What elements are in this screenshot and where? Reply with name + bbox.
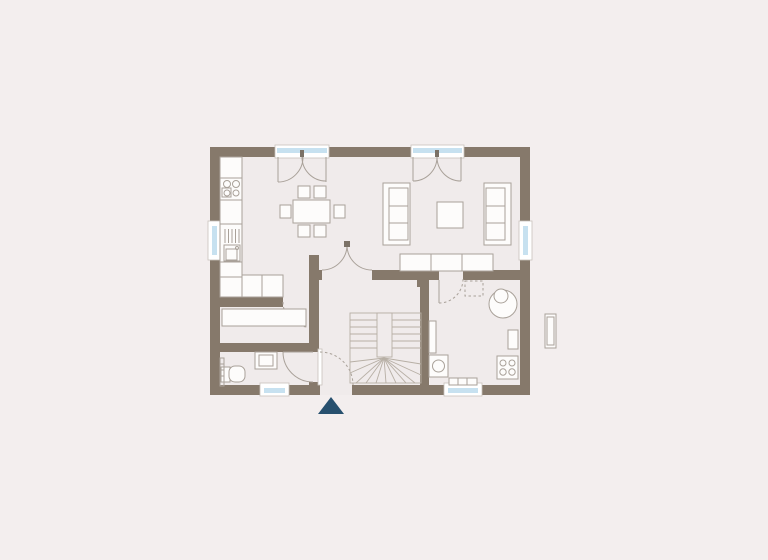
outer-wall-left-lower	[210, 258, 220, 385]
coffee-table	[437, 202, 463, 228]
door-mullion	[435, 150, 439, 157]
window-right	[519, 221, 532, 260]
lowboard-body	[400, 254, 493, 271]
outer-wall-bottom-right	[480, 385, 530, 395]
lowboard	[400, 254, 493, 271]
utility-shelf	[508, 330, 518, 349]
door-leaf	[318, 349, 322, 385]
outer-wall-right-upper	[520, 157, 530, 223]
dining-chair	[298, 225, 310, 237]
sofa-left	[383, 183, 410, 245]
window-left	[208, 221, 221, 260]
outer-wall-top-center	[327, 147, 413, 157]
utility-radiator	[449, 378, 477, 385]
toilet-bowl	[229, 366, 245, 382]
window-glass	[448, 388, 478, 393]
window-glass	[264, 388, 285, 393]
toilet	[221, 366, 245, 382]
dining-chair	[314, 186, 326, 198]
window-glass	[523, 226, 528, 255]
heater-top	[494, 289, 508, 303]
door-pivot	[344, 241, 350, 247]
utility-cabinet	[429, 321, 436, 353]
wall-pantry-south	[210, 343, 319, 352]
wall-kitchen-south	[210, 297, 283, 307]
outer-wall-top-left	[210, 147, 277, 157]
door-mullion	[300, 150, 304, 157]
utility-appliance-icon	[497, 356, 518, 379]
wall-hall-west-stub	[309, 382, 319, 385]
outer-wall-top-right	[462, 147, 530, 157]
dining-chair	[298, 186, 310, 198]
wall-mid-west	[309, 270, 322, 280]
door-threshold	[320, 385, 352, 395]
outer-wall-right-lower	[520, 258, 530, 385]
wall-hall-west	[309, 255, 319, 352]
dining-chair	[334, 205, 345, 218]
outer-wall-bottom-entry-left	[288, 385, 320, 395]
washer-body	[429, 355, 448, 377]
window-wc	[260, 383, 289, 396]
wc-sink	[255, 352, 277, 369]
radiator-body	[449, 378, 477, 385]
floor-plan	[0, 0, 768, 560]
exterior-object	[545, 314, 556, 348]
dining-chair	[280, 205, 291, 218]
stair-void	[377, 313, 392, 357]
appliance-body	[497, 356, 518, 379]
pantry-shelf	[222, 309, 306, 326]
sofa-body	[383, 183, 410, 245]
window-glass	[212, 226, 217, 255]
dining-chair	[314, 225, 326, 237]
outer-wall-left-upper	[210, 157, 220, 223]
dining-table	[293, 200, 330, 223]
outer-wall-bottom-center	[352, 385, 446, 395]
outer-wall-bottom-left	[210, 385, 262, 395]
sofa-right	[484, 183, 511, 245]
sofa-body	[484, 183, 511, 245]
washing-machine-icon	[429, 355, 448, 377]
water-heater-icon	[489, 289, 517, 318]
